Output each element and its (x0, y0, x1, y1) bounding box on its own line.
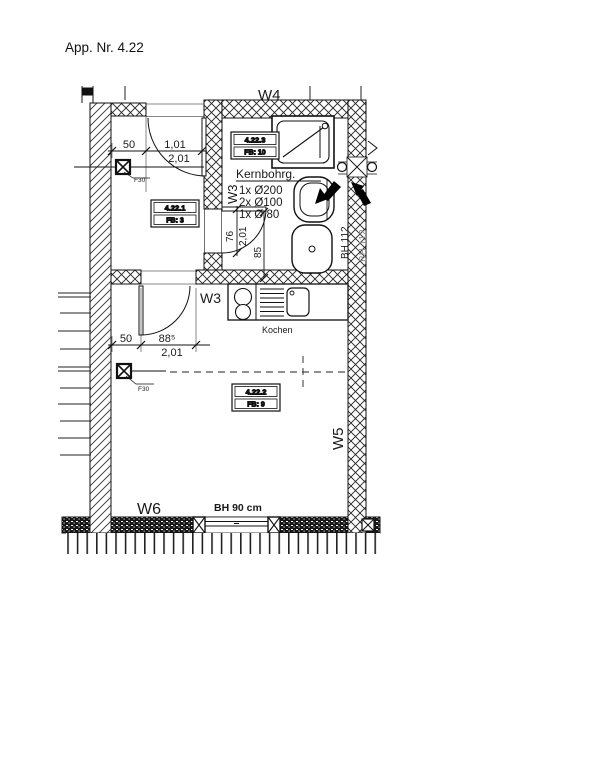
label-w6: W6 (137, 501, 161, 518)
core-drill-circle-inner (338, 163, 347, 172)
stair-ticks-left (58, 293, 91, 455)
pipe-penetration (338, 157, 378, 177)
dim-entry-height: 2,01 (168, 153, 189, 165)
label-w3-bath: W3 (225, 185, 240, 205)
room-id: 4.22.3 (245, 136, 266, 145)
core-drill-circle-outer (368, 163, 377, 172)
dim-entry-width: 1,01 (164, 139, 185, 151)
neighbor-door-mark (368, 141, 377, 155)
room-id: 4.22.1 (165, 204, 186, 213)
room-id: 4.22.2 (246, 388, 267, 397)
room-tag-4-22-1: 4.22.1 FB: 3 (151, 200, 199, 227)
kitchen-counter (228, 284, 348, 320)
kernbohrung-line: 1x Ø 80 (239, 209, 279, 221)
kernbohrung-line: 1x Ø200 (239, 185, 282, 197)
label-bh90: BH 90 cm (214, 502, 262, 514)
room-fb: FB: 3 (166, 218, 184, 225)
wall-left (90, 103, 111, 533)
kernbohrung-line: 2x Ø100 (239, 197, 282, 209)
drainer-lines (260, 289, 284, 316)
room-tag-4-22-2: 4.22.2 FB: 9 (232, 384, 280, 411)
washbasin (292, 225, 332, 273)
shower-tray (272, 116, 334, 168)
dim-main-offset: 50 (120, 333, 132, 345)
dim-main-door-width: 88⁵ (159, 333, 176, 345)
f30-symbol-bottom (117, 364, 166, 384)
label-kochen: Kochen (262, 325, 293, 335)
dim-bath-door-width: 76 (225, 230, 236, 242)
label-w4: W4 (258, 87, 281, 104)
room-fb: FB: 10 (244, 150, 266, 157)
window-post-left (193, 517, 205, 533)
dim-entry (108, 112, 207, 192)
door-main-room (139, 271, 196, 335)
label-f30-bottom: F30 (138, 386, 150, 393)
label-w3-main: W3 (200, 290, 221, 306)
room-tag-4-22-3: 4.22.3 FB: 10 (231, 132, 279, 159)
window-post-right (268, 517, 280, 533)
floor-plan: 4.22.3 FB: 10 4.22.1 FB: 3 4.22.2 FB: 9 … (0, 0, 604, 768)
railing-ticks (66, 533, 380, 554)
label-w5: W5 (330, 428, 347, 451)
wall-sep-left (111, 270, 141, 284)
dim-entry-offset: 50 (123, 139, 135, 151)
cooktop-burner (236, 305, 251, 320)
wall-cap-top-left (82, 86, 93, 103)
wall-top-stub (111, 103, 146, 116)
kitchen-sink-drain (290, 291, 294, 295)
dim-bath-door-height: 2,01 (238, 226, 249, 246)
label-f30-top: F30 (134, 177, 146, 184)
axis-ticks-top (125, 86, 361, 100)
wall-post-far-right (362, 519, 374, 531)
wall-w3-upper (204, 100, 222, 209)
label-bh112-outer: BH 112 (358, 229, 369, 262)
kernbohrung-title: Kernbohrg. (236, 167, 295, 181)
dim-main-door-height: 2,01 (161, 347, 182, 359)
dim-basin-distance: 85 (253, 246, 264, 258)
room-fb: FB: 9 (247, 402, 265, 409)
label-bh112-inner: BH 112 (340, 226, 351, 259)
cooktop-burner (235, 289, 252, 306)
